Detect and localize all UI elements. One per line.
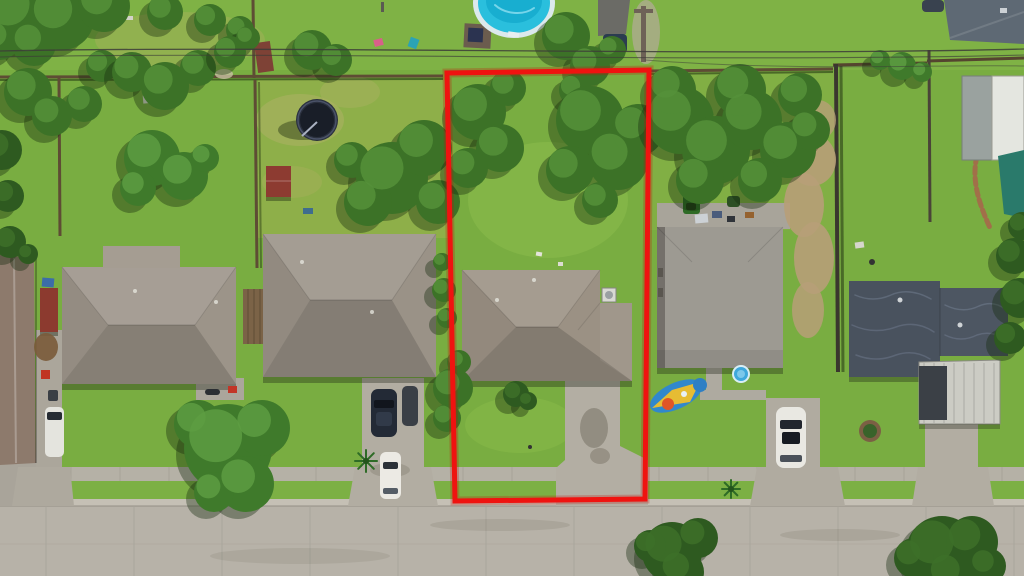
suv-white-windshield (780, 420, 802, 429)
suv-dark-roof-glint (376, 412, 392, 426)
back-fence-west-shadow (0, 79, 443, 80)
tree-lot-right-big-highlight-2 (549, 149, 578, 178)
trees-lot-left-highlight-1 (479, 127, 508, 156)
driveway-stain-1 (580, 408, 608, 448)
tree-yard-e-big-highlight-7 (651, 69, 680, 98)
carport-f-shadow (919, 424, 1000, 429)
roof-vent-c1 (300, 260, 304, 264)
street-stain-2 (210, 548, 390, 564)
street-stain-3 (780, 529, 900, 541)
roof-vent-c2 (370, 310, 374, 314)
yard-f-item (855, 241, 865, 248)
yard-c-item-blue (303, 208, 313, 214)
shed-top-right-gray (962, 76, 992, 160)
tree-parkway-big-highlight-4 (196, 474, 220, 498)
inflatable-slide-splash (693, 378, 707, 392)
trees-top-left-corner-highlight-3 (15, 25, 41, 51)
tree-yard-e-big-highlight-2 (726, 94, 762, 130)
tarp-blue-alley-a (42, 277, 55, 287)
tree-yard-b-center-highlight-1 (163, 155, 192, 184)
vehicle-under-tree (402, 386, 418, 426)
trees-left-fence-highlight-2 (68, 88, 90, 110)
suv-white-sunroof (782, 432, 800, 444)
trees-yard-b-top-highlight-0 (114, 54, 138, 78)
building-top-right (944, 0, 1024, 44)
apron-a (12, 467, 74, 506)
roof-vent-d2 (495, 298, 499, 302)
tree-yard-c-big-highlight-4 (336, 144, 358, 166)
trees-above-yard-c-highlight-0 (294, 32, 318, 56)
tree-yard-e-big-highlight-6 (792, 112, 816, 136)
lot-debris-2 (558, 262, 563, 266)
house-e-window-1 (658, 268, 663, 277)
trash-bin-alley-a (48, 390, 58, 401)
trees-lot-left-highlight-2 (450, 150, 474, 174)
trees-left-fence-highlight-1 (34, 98, 58, 122)
carport-f-opening (919, 366, 947, 420)
utility-pole (641, 6, 646, 62)
tree-yard-e-big-highlight-8 (717, 67, 748, 98)
tree-yard-e-big-highlight-9 (781, 76, 807, 102)
trees-above-yard-c-highlight-2 (216, 38, 235, 57)
bush-subject-front-yard-highlight-1 (520, 393, 531, 404)
shrubs-yard-e-right-highlight-1 (913, 63, 925, 75)
trees-top-center-highlight-0 (545, 15, 574, 44)
tree-yard-e-big-highlight-3 (763, 125, 797, 159)
palm-yard-c-front-crown (363, 458, 369, 464)
palm-yard-e-front-crown (728, 486, 734, 492)
house-e-roof (657, 227, 783, 368)
tree-yard-e-big-highlight-5 (741, 161, 767, 187)
street (0, 506, 1024, 576)
tree-street-right-highlight-1 (949, 519, 980, 550)
suv-dark-windshield (374, 400, 394, 408)
house-e-window-2 (658, 288, 663, 297)
yard-stake (528, 445, 532, 449)
utility-pole-crossarm (634, 9, 653, 13)
patio-e-item-4 (745, 212, 754, 218)
yard-f-dot (869, 259, 875, 265)
roof-vent-b2 (214, 300, 218, 304)
patio-e-item-2 (712, 211, 722, 218)
apron-f (912, 467, 994, 506)
walk-e-cross (700, 390, 766, 400)
trees-right-edge-highlight-0 (998, 240, 1020, 262)
shed-top-right-white (992, 76, 1024, 160)
tree-parkway-big-highlight-1 (237, 403, 271, 437)
house-e-shadow (657, 368, 783, 374)
pole-neighbor (381, 2, 384, 12)
trees-lot-left-highlight-0 (453, 87, 487, 121)
bushes-lot-west-fence-highlight-2 (434, 254, 445, 265)
kiddie-pool-water (737, 370, 745, 378)
tree-parkway-big-highlight-2 (177, 403, 206, 432)
tree-street-center-highlight-2 (636, 532, 655, 551)
house-e-facet-s (657, 350, 783, 368)
cooler-red-alley-a (41, 370, 50, 379)
bush-subject-front-yard-highlight-0 (505, 383, 521, 399)
trees-above-yard-c-highlight-3 (237, 27, 251, 41)
tree-lot-right-big-highlight-1 (592, 134, 628, 170)
shed-red-a (40, 288, 58, 332)
tree-yard-b-center-highlight-0 (127, 133, 161, 167)
building-top-right-vent (1000, 8, 1007, 13)
palm-yard-e-front (722, 480, 740, 498)
roof-vent-d1 (532, 278, 536, 282)
car-white-street-windshield (383, 462, 398, 469)
tree-lot-right-big-highlight-0 (560, 90, 601, 131)
dirt-path-e-4 (794, 222, 834, 294)
tree-yard-b-center-highlight-3 (193, 146, 210, 163)
trees-left-fence-highlight-3 (88, 52, 107, 71)
side-fence-e-f (836, 64, 838, 372)
house-a-roof (0, 255, 36, 465)
dirt-path-e-5 (792, 282, 824, 338)
cooler-red-patio-b (228, 386, 237, 393)
house-c-shadow (263, 377, 436, 383)
tree-parkway-big-highlight-3 (221, 459, 255, 493)
shrubs-yard-e-right-highlight-0 (890, 54, 907, 71)
tree-ring-f-plant (863, 424, 877, 438)
inflatable-slide-red (662, 398, 674, 410)
tree-lot-right-big-highlight-4 (584, 184, 606, 206)
driveway-f (925, 424, 978, 467)
house-b-back-wing (103, 246, 180, 268)
driveway-stain-2 (590, 448, 610, 464)
patio-e-item-3 (727, 216, 735, 222)
trees-top-mid-left-highlight-1 (196, 6, 215, 25)
palm-yard-c-front (355, 450, 377, 472)
trees-right-edge-highlight-2 (996, 324, 1015, 343)
pool-deck-box (468, 28, 484, 43)
car-dark-top-right (922, 0, 944, 12)
subject-house-shadow (462, 381, 632, 387)
inflatable-slide-white (681, 391, 687, 397)
roof-vent-f1 (898, 298, 903, 303)
house-e-left-band (657, 227, 665, 368)
ac-unit-fan (605, 291, 613, 299)
aerial-photo (0, 0, 1024, 576)
building-behind-lot (598, 0, 630, 36)
bushes-lot-west-fence-highlight-0 (433, 279, 447, 293)
patio-e-item-1 (695, 213, 709, 223)
patio-e-back (657, 203, 790, 229)
apron-e (750, 467, 845, 506)
tree-street-right-highlight-2 (896, 540, 920, 564)
street-stain-1 (430, 519, 570, 531)
tree-yard-c-big-highlight-2 (347, 181, 376, 210)
tree-yard-e-big-highlight-4 (679, 159, 708, 188)
roof-vent-f2 (958, 323, 963, 328)
tree-street-right-highlight-3 (972, 550, 994, 572)
trees-yard-b-top-highlight-1 (144, 65, 173, 94)
trees-left-edge-highlight-3 (19, 245, 31, 257)
aerial-scene (0, 0, 1024, 576)
car-white-street-rear (383, 488, 398, 494)
shed-red-c-shadow (266, 197, 291, 201)
tree-yard-e-big-highlight-1 (686, 120, 727, 161)
side-fence-b-c (255, 80, 257, 268)
tree-yard-c-big-highlight-3 (419, 183, 445, 209)
grill-patio-b (205, 389, 220, 395)
tree-yard-b-center-highlight-2 (122, 172, 144, 194)
side-fence-e-f-shadow (841, 66, 843, 372)
suv-white-rear (780, 455, 802, 462)
mulch-pile-alley-a (34, 333, 58, 361)
van-white-windshield (47, 412, 62, 420)
roof-vent-b1 (133, 289, 137, 293)
tree-street-center-highlight-1 (680, 520, 704, 544)
trees-left-fence-highlight-0 (7, 71, 36, 100)
layer-streetscape (0, 467, 1024, 576)
tree-yard-c-big-highlight-1 (399, 123, 433, 157)
